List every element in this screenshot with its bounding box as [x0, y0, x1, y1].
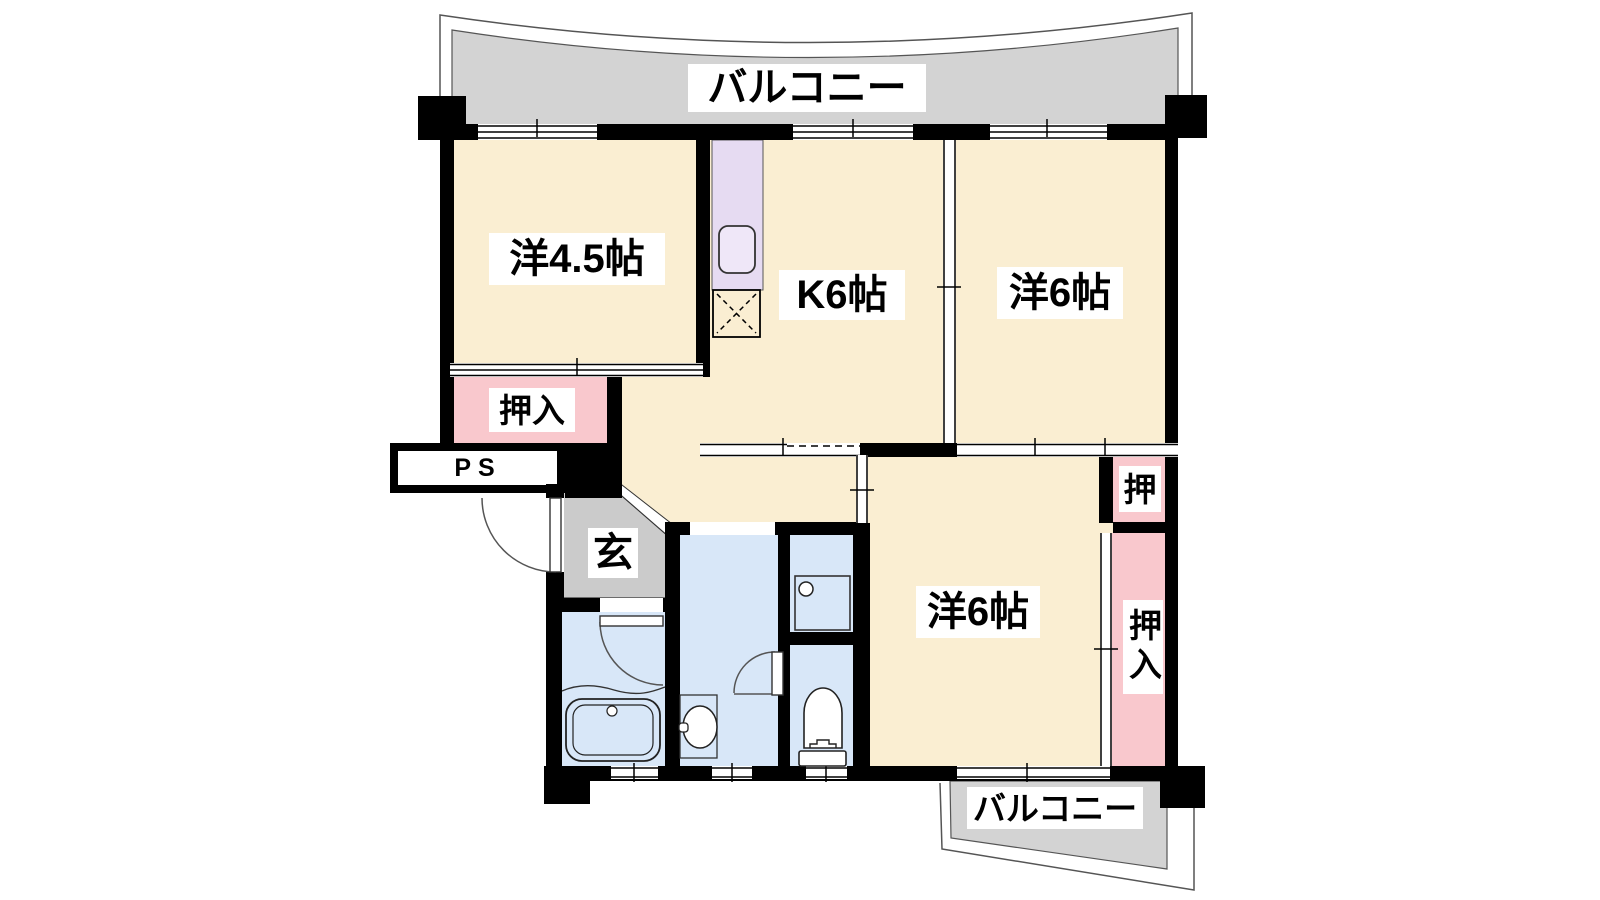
- wall-closet-small-bottom: [1113, 522, 1165, 533]
- pipe-space-label: PS: [399, 452, 557, 484]
- wall-wet-east: [853, 523, 870, 781]
- room-southeast-label: 洋6帖: [916, 586, 1040, 638]
- wall-entrance-west-top: [546, 483, 564, 498]
- wall-center-column: [665, 522, 680, 781]
- wall-entrance-west-bottom: [546, 572, 564, 602]
- wall-corner-se: [1160, 766, 1205, 808]
- floor-plan-drawing: [0, 0, 1600, 900]
- floor-plan: バルコニー 洋4.5帖 K6帖 洋6帖 押入 PS 玄 洋6帖 押 押入 バルコ…: [0, 0, 1600, 900]
- kitchen-label: K6帖: [779, 270, 905, 320]
- kitchen-sink-icon: [719, 226, 755, 273]
- wall-kitchen-band: [860, 443, 957, 457]
- wall-top-b: [597, 124, 793, 140]
- wall-closet-small-west: [1099, 457, 1113, 523]
- wall-room-west-kitchen: [696, 140, 710, 377]
- entrance-label: 玄: [588, 528, 638, 578]
- balcony-bottom-label: バルコニー: [967, 787, 1143, 829]
- opening-washroom: [690, 522, 775, 535]
- sliding-track-dashed: [787, 443, 860, 457]
- closet-east-label: 押入: [1123, 600, 1163, 694]
- wall-entrance-block: [565, 443, 622, 498]
- exterior-notch: [390, 493, 546, 766]
- closet-west-label: 押入: [489, 388, 575, 432]
- room-west-label: 洋4.5帖: [489, 233, 665, 285]
- laundry-floor: [790, 535, 853, 632]
- wall-top-c: [913, 124, 990, 140]
- wall-corner-sw: [544, 766, 590, 804]
- stove-area-icon: [713, 290, 760, 337]
- wall-pillar-ne: [1165, 95, 1207, 138]
- room-northeast-label: 洋6帖: [997, 267, 1123, 319]
- wall-bath-west: [546, 598, 562, 781]
- toilet-icon: [799, 688, 846, 766]
- opening-bath: [600, 598, 663, 612]
- wall-east: [1165, 138, 1178, 781]
- wall-bath-top-a: [546, 598, 600, 612]
- closet-small-label: 押: [1119, 466, 1161, 512]
- wall-west: [440, 138, 454, 445]
- wall-top-a: [453, 124, 478, 140]
- balcony-top-label: バルコニー: [688, 64, 926, 112]
